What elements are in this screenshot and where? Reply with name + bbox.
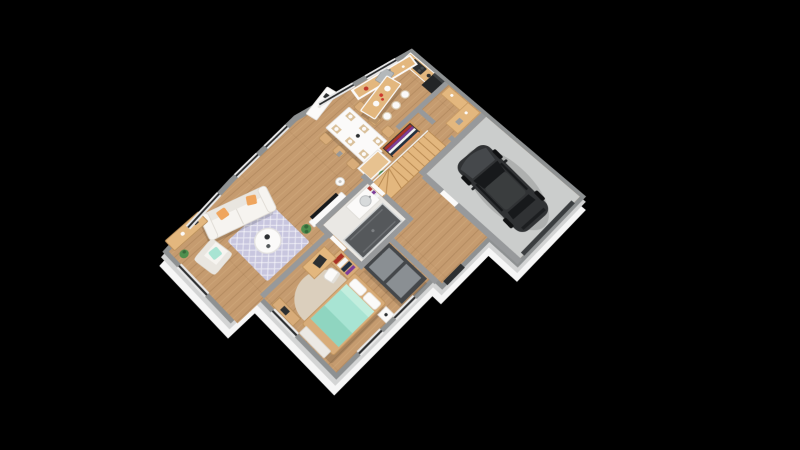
floor-plan-canvas	[0, 32, 800, 450]
floor-plan-stage	[0, 32, 800, 450]
